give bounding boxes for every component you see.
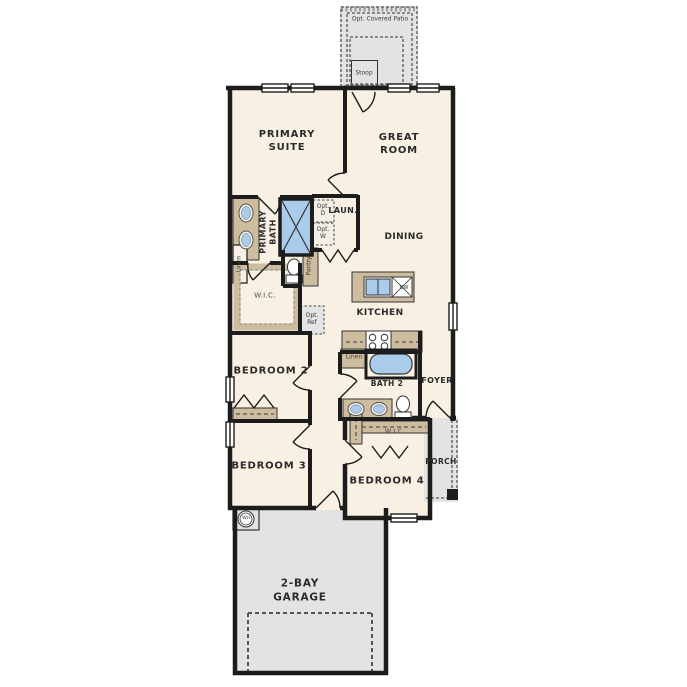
bedroom2-closet-doors [234,395,274,408]
stoop-door [352,92,375,112]
garage-label: 2-BAY GARAGE [273,577,327,604]
bedroom3-door [293,425,310,449]
dishwasher-label: DW [400,285,409,292]
primary-bath-label: PRIMARY BATH [259,210,280,253]
wic-primary-label: W.I.C. [254,291,276,300]
bath2-door [340,374,357,398]
bedroom3-label: BEDROOM 3 [231,460,306,473]
bath2-label: BATH 2 [371,379,404,389]
opt-ref-label: Opt. Ref [306,313,319,327]
shower [280,199,312,255]
island-sink [364,277,392,297]
linen-primary-label: Linen [237,256,244,272]
laundry-doors [322,250,354,262]
kitchen-label: KITCHEN [356,308,403,320]
primary-suite-door [328,173,345,197]
front-door [426,401,450,418]
patio-label: Opt. Covered Patio [352,17,408,24]
garage-door-outline [248,613,372,671]
linen-bath2-label: Linen [346,355,362,362]
porch-post [447,489,458,500]
opt-washer-label: Opt. W [317,227,330,241]
wic-bedroom4-label: W.I.C. [385,427,405,435]
garage-entry-door [316,491,340,508]
bedroom2-label: BEDROOM 2 [233,365,308,378]
pantry-label: Pantry [307,256,314,275]
great-room-label: GREAT ROOM [379,131,420,157]
water-heater-label: WH [242,516,250,522]
floor-plan: Opt. Covered Patio Stoop PRIMARY SUITE G… [0,0,687,687]
toilet-bath2 [395,396,411,419]
stoop-label: Stoop [355,71,372,78]
opt-dryer-label: Opt. D [317,204,330,218]
porch-label: PORCH [425,457,456,467]
bathtub [366,350,416,378]
wic-bedroom4-doors [372,446,408,458]
laundry-label: LAUN. [328,206,357,216]
dining-label: DINING [384,232,423,244]
plan-linework [0,0,687,687]
bedroom4-label: BEDROOM 4 [349,475,424,488]
primary-suite-label: PRIMARY SUITE [259,128,315,154]
foyer-label: FOYER [421,376,452,386]
